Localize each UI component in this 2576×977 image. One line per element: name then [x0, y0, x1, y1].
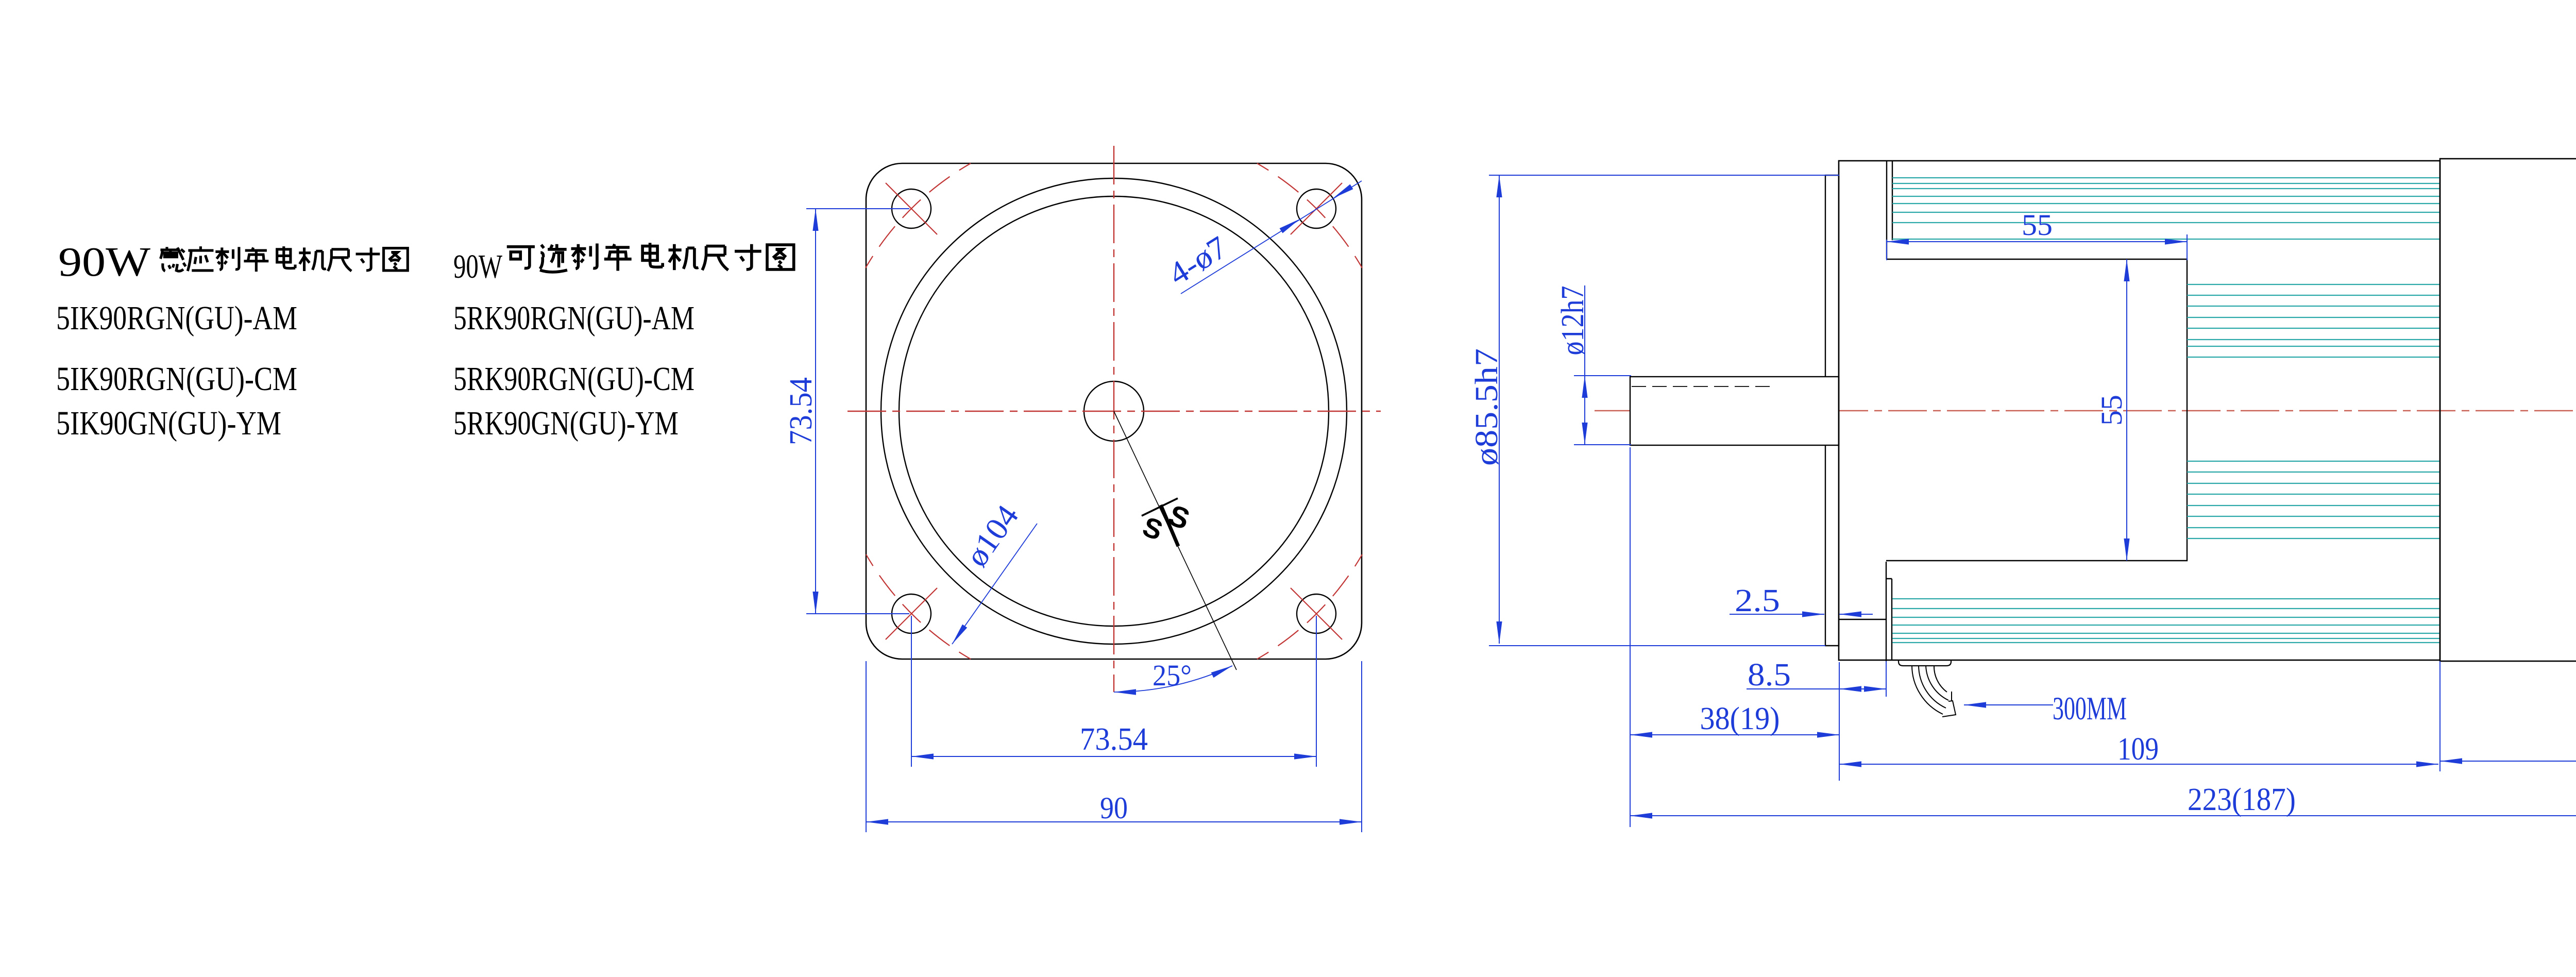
svg-text:2.5: 2.5: [1735, 583, 1780, 618]
svg-text:5RK90GN(GU)-YM: 5RK90GN(GU)-YM: [453, 405, 679, 442]
svg-text:55: 55: [2095, 395, 2128, 426]
svg-text:5RK90RGN(GU)-CM: 5RK90RGN(GU)-CM: [453, 360, 694, 398]
svg-text:5IK90RGN(GU)-AM: 5IK90RGN(GU)-AM: [56, 299, 297, 337]
svg-text:25°: 25°: [1153, 659, 1192, 692]
svg-text:38(19): 38(19): [1700, 701, 1780, 736]
svg-text:90W: 90W: [453, 248, 503, 285]
svg-text:223(187): 223(187): [2188, 782, 2296, 817]
svg-text:ø85.5h7: ø85.5h7: [1469, 348, 1504, 466]
svg-text:8.5: 8.5: [1748, 658, 1791, 693]
svg-text:5RK90RGN(GU)-AM: 5RK90RGN(GU)-AM: [453, 299, 694, 337]
svg-text:300MM: 300MM: [2053, 690, 2127, 727]
svg-text:55: 55: [2022, 208, 2053, 242]
svg-text:90: 90: [1100, 791, 1128, 825]
svg-text:5IK90RGN(GU)-CM: 5IK90RGN(GU)-CM: [56, 360, 297, 398]
svg-text:90W: 90W: [58, 240, 151, 285]
svg-text:109: 109: [2117, 732, 2159, 767]
svg-text:ø12h7: ø12h7: [1555, 286, 1590, 356]
svg-text:5IK90GN(GU)-YM: 5IK90GN(GU)-YM: [56, 405, 281, 442]
svg-text:73.54: 73.54: [1080, 722, 1148, 757]
svg-text:73.54: 73.54: [784, 377, 819, 445]
